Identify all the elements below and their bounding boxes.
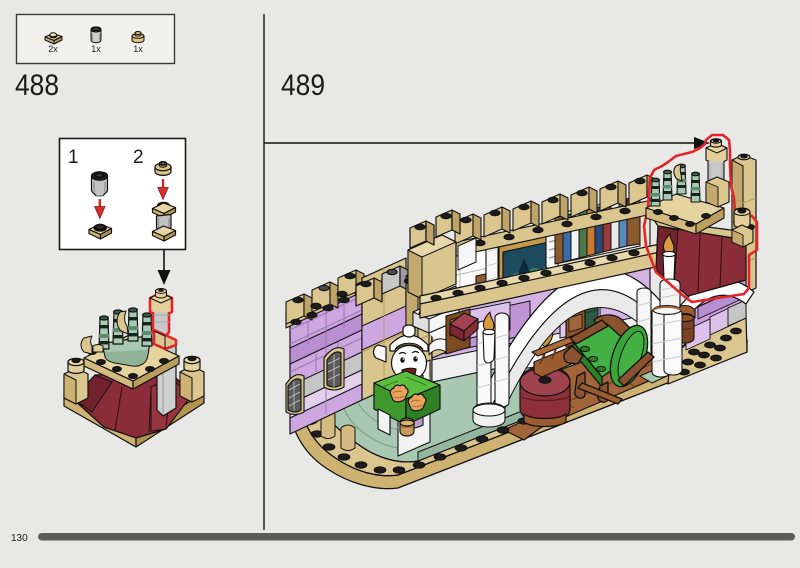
svg-text:1: 1 [68, 147, 79, 168]
svg-text:2: 2 [133, 147, 144, 168]
svg-text:488: 488 [15, 69, 59, 102]
svg-text:1x: 1x [133, 44, 143, 54]
svg-text:1x: 1x [91, 44, 101, 54]
svg-text:489: 489 [281, 69, 325, 102]
svg-text:2x: 2x [48, 44, 58, 54]
svg-text:130: 130 [11, 533, 28, 544]
